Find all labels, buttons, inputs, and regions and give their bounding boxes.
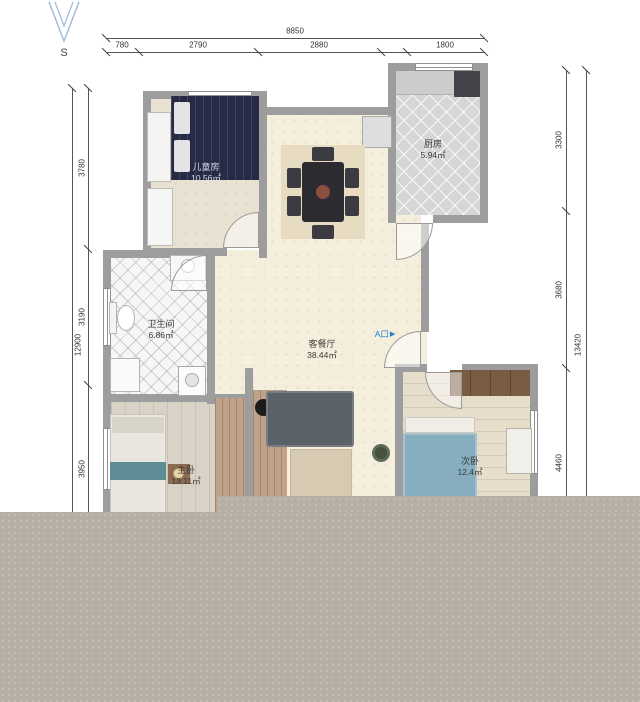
- south-arrow-icon: [46, 0, 82, 44]
- wall: [207, 250, 215, 404]
- room-label-bathroom: 卫生间 6.86㎡: [147, 319, 174, 341]
- dim-top-seg: 2880: [310, 41, 328, 50]
- dim-top-total: 8850: [286, 27, 304, 36]
- room-name: 卫生间: [147, 319, 174, 330]
- dim-left-total: 12900: [74, 334, 83, 356]
- room-label-master-bedroom: 主卧 13.11㎡: [171, 465, 200, 487]
- entrance-arrow-icon: ▶: [390, 330, 395, 338]
- plant: [372, 444, 390, 462]
- dining-chair: [345, 168, 359, 188]
- dining-chair: [287, 168, 301, 188]
- shower-tray: [110, 358, 140, 392]
- window: [415, 63, 473, 71]
- dim-top-seg: 2790: [189, 41, 207, 50]
- room-name: 次卧: [457, 456, 482, 467]
- second-dresser: [506, 428, 532, 474]
- dim-top-seg: 1800: [436, 41, 454, 50]
- dim-line-right-segments: [566, 70, 567, 558]
- room-label-living-dining: 客餐厅 38.44㎡: [307, 339, 337, 361]
- room-area: 12.4㎡: [457, 467, 482, 478]
- childroom-desk: [147, 188, 173, 246]
- dim-line-left-segments: [88, 88, 89, 554]
- dining-chair: [287, 196, 301, 216]
- dining-chair: [345, 196, 359, 216]
- compass-south-label: S: [46, 47, 82, 59]
- floorplan-canvas: S: [0, 0, 640, 702]
- room-area: 6.86㎡: [147, 330, 174, 341]
- dim-right-seg: 3680: [555, 281, 564, 299]
- room-name: 厨房: [420, 139, 445, 150]
- wall: [480, 63, 488, 223]
- wall: [267, 107, 396, 115]
- dim-right-seg: 4460: [555, 454, 564, 472]
- entrance-marker: A口 ▶: [375, 328, 396, 340]
- fridge: [362, 116, 392, 148]
- second-wardrobe: [450, 370, 530, 396]
- room-area: 13.11㎡: [171, 476, 200, 487]
- dim-line-top-total: [106, 38, 484, 39]
- room-area: 10.56㎡: [191, 173, 221, 184]
- dim-left-seg: 3190: [78, 308, 87, 326]
- room-label-second-bedroom: 次卧 12.4㎡: [457, 456, 482, 478]
- room-name: 儿童房: [191, 162, 221, 173]
- dining-chair: [312, 225, 334, 239]
- childroom-pillow: [174, 140, 190, 172]
- gray-cover-bottom: [0, 512, 640, 702]
- second-bed-pillows: [405, 417, 475, 433]
- childroom-pillow: [174, 102, 190, 134]
- master-throw: [110, 462, 166, 480]
- wall: [259, 91, 267, 258]
- room-area: 38.44㎡: [307, 350, 337, 361]
- room-name: 客餐厅: [307, 339, 337, 350]
- wall: [395, 372, 403, 513]
- dim-left-seg: 3780: [78, 159, 87, 177]
- washing-machine-door: [185, 373, 199, 387]
- toilet: [117, 305, 135, 331]
- dining-chair: [312, 147, 334, 161]
- dim-line-top-segments: [106, 52, 484, 53]
- room-area: 5.94㎡: [420, 150, 445, 161]
- dining-centerpiece: [316, 185, 330, 199]
- dim-top-seg: 780: [115, 41, 128, 50]
- dim-left-seg: 3950: [78, 460, 87, 478]
- room-label-childroom: 儿童房 10.56㎡: [191, 162, 221, 184]
- room-label-kitchen: 厨房 5.94㎡: [420, 139, 445, 161]
- dim-right-seg: 3300: [555, 131, 564, 149]
- dim-right-total: 13420: [574, 334, 583, 356]
- room-name: 主卧: [171, 465, 200, 476]
- entrance-label: A口: [375, 328, 389, 340]
- childroom-wardrobe: [147, 112, 171, 182]
- wall: [433, 215, 488, 223]
- sofa: [266, 391, 354, 447]
- compass: S: [46, 0, 82, 59]
- master-pillows: [112, 417, 164, 433]
- kitchen-sink: [454, 71, 480, 97]
- wall: [245, 368, 253, 513]
- toilet-tank: [109, 302, 117, 334]
